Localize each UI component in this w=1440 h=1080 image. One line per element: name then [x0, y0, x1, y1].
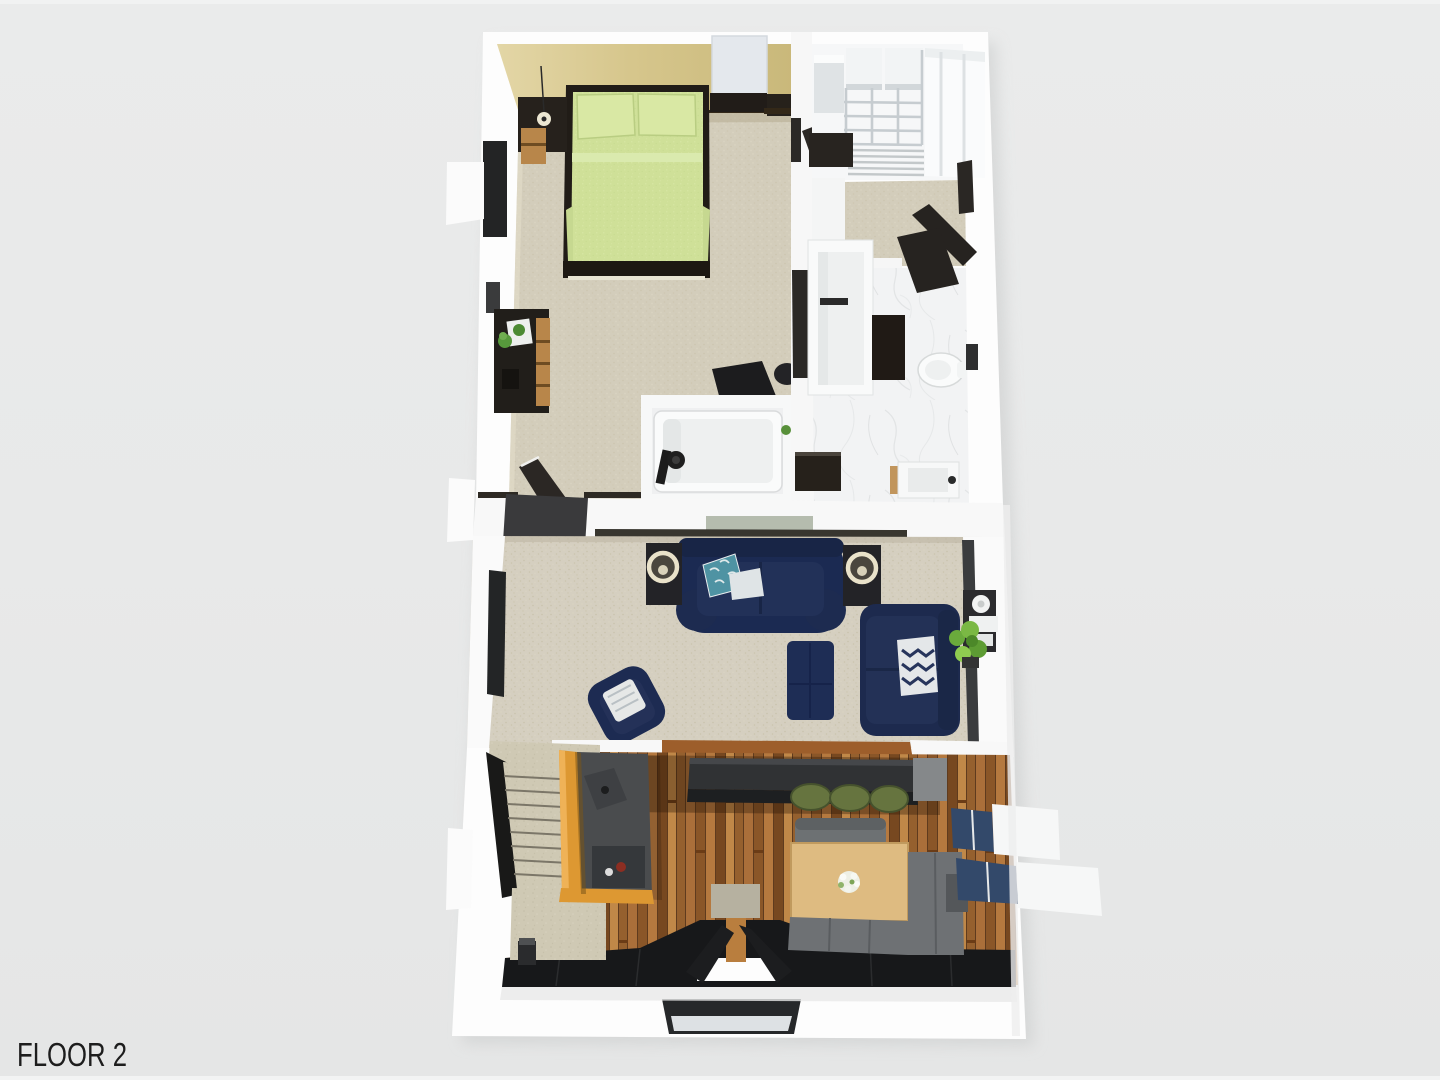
svg-text:FLOOR 2: FLOOR 2: [17, 1036, 127, 1073]
